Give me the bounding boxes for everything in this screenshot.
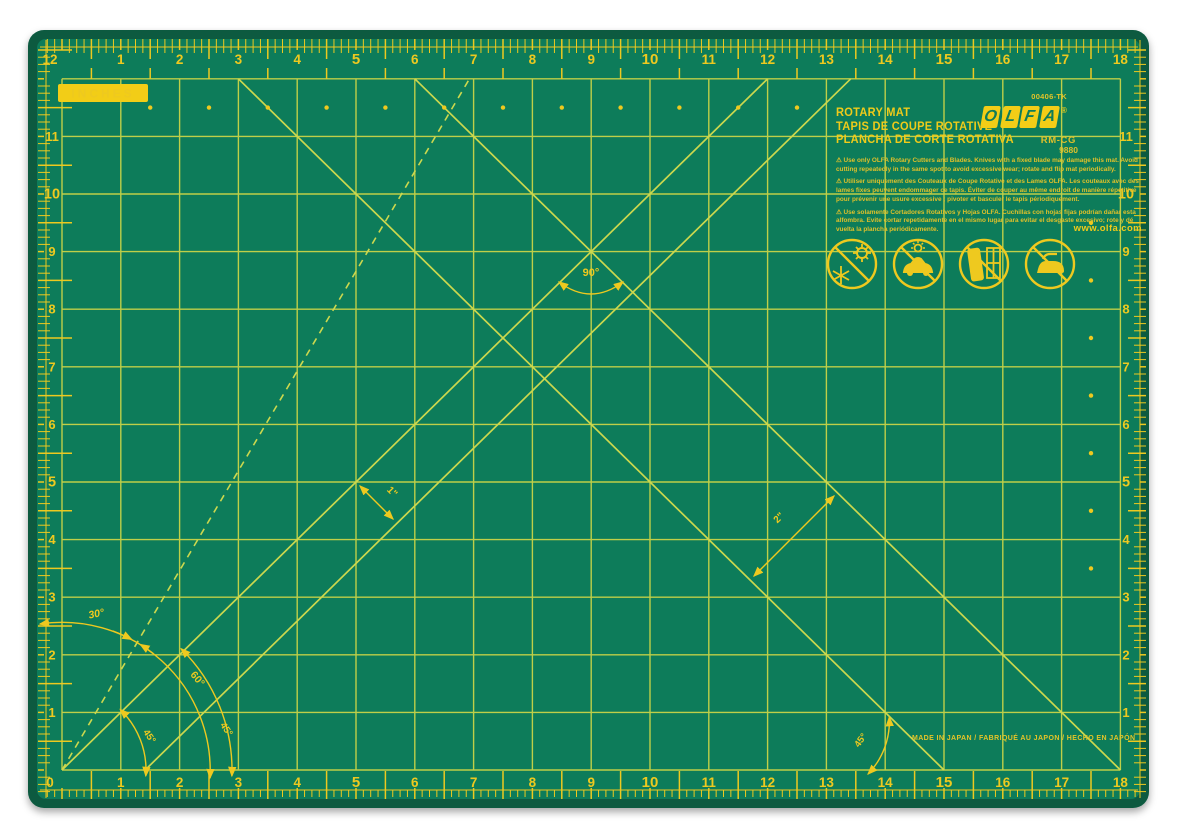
ruler-number-bottom: 3: [235, 775, 243, 790]
ruler-number-top: 10: [642, 51, 659, 68]
ruler-number-bottom: 10: [642, 774, 659, 791]
ruler-number-bottom: 14: [878, 775, 894, 790]
ruler-number-left: 2: [48, 647, 55, 662]
website-url: www.olfa.com: [836, 223, 1142, 234]
half-inch-dot: [1089, 278, 1093, 282]
ruler-number-bottom: 11: [702, 775, 717, 790]
ruler-number-bottom: 7: [470, 775, 478, 790]
logo-letter: A: [1042, 108, 1057, 126]
olfa-logo-tile: L: [1000, 106, 1021, 128]
ruler-number-right: 2: [1122, 647, 1129, 662]
half-inch-dot: [736, 105, 740, 109]
ruler-number-top: 14: [878, 52, 894, 67]
ruler-number-top: 9: [587, 52, 595, 67]
ruler-number-corner-bottom-left: 0: [46, 775, 54, 790]
warning-fr: ⚠ Utiliser uniquement des Couteaux de Co…: [836, 178, 1142, 204]
ruler-number-bottom: 18: [1113, 775, 1129, 790]
registered-trademark-symbol: ®: [1061, 106, 1067, 115]
ruler-number-bottom: 6: [411, 775, 419, 790]
ruler-number-right: 4: [1122, 532, 1130, 547]
ruler-number-right: 8: [1122, 302, 1129, 317]
half-inch-dot: [383, 105, 387, 109]
ruler-number-bottom: 4: [293, 775, 301, 790]
ruler-number-bottom: 1: [117, 775, 125, 790]
half-inch-dot: [1089, 393, 1093, 397]
ruler-number-bottom: 8: [529, 775, 537, 790]
half-inch-dot: [1089, 566, 1093, 570]
ruler-number-top: 3: [235, 52, 243, 67]
ruler-number-top: 17: [1054, 52, 1069, 67]
ruler-number-bottom: 5: [352, 774, 360, 791]
ruler-number-bottom: 9: [587, 775, 595, 790]
ruler-number-right: 1: [1122, 705, 1129, 720]
ruler-number-top: 15: [936, 51, 953, 68]
ruler-number-left: 9: [48, 244, 55, 259]
half-inch-dot: [677, 105, 681, 109]
ruler-number-right: 7: [1122, 359, 1129, 374]
olfa-logo: O L F A ®: [982, 106, 1067, 128]
half-inch-dot: [324, 105, 328, 109]
ruler-number-top: 6: [411, 52, 419, 67]
ruler-number-bottom: 2: [176, 775, 184, 790]
ruler-number-right: 3: [1122, 590, 1129, 605]
ruler-number-left: 7: [48, 359, 55, 374]
ruler-number-top: 16: [995, 52, 1011, 67]
half-inch-dot: [1089, 336, 1093, 340]
ruler-number-left: 6: [48, 417, 55, 432]
olfa-logo-tile: F: [1019, 106, 1040, 128]
ruler-number-right: 6: [1122, 417, 1129, 432]
half-inch-dot: [442, 105, 446, 109]
inches-badge-label: INCHES: [71, 87, 134, 101]
ruler-number-top: 11: [702, 52, 717, 67]
ruler-number-right: 5: [1122, 475, 1130, 491]
ruler-number-left: 3: [48, 590, 55, 605]
ruler-number-left: 1: [48, 705, 55, 720]
product-name-es: PLANCHA DE CORTE ROTATIVA: [836, 134, 1014, 148]
half-inch-dot: [795, 105, 799, 109]
ruler-number-corner-top-left: 12: [42, 52, 57, 67]
ruler-number-right: 9: [1122, 244, 1129, 259]
ruler-number-top: 1: [117, 52, 125, 67]
ruler-number-left: 11: [45, 129, 59, 144]
ruler-number-top: 7: [470, 52, 478, 67]
model-number: 9880: [1026, 145, 1078, 155]
inches-badge: INCHES: [58, 84, 148, 102]
ruler-number-top: 2: [176, 52, 184, 67]
made-in-line: MADE IN JAPAN / FABRIQUÉ AU JAPON / HECH…: [912, 735, 1127, 742]
ruler-number-left: 4: [48, 532, 56, 547]
ruler-number-top: 5: [352, 51, 360, 68]
ruler-number-bottom: 15: [936, 774, 953, 791]
ruler-number-bottom: 16: [995, 775, 1011, 790]
half-inch-dot: [560, 105, 564, 109]
half-inch-dot: [1089, 509, 1093, 513]
half-inch-dot: [266, 105, 270, 109]
warning-en: ⚠ Use only OLFA Rotary Cutters and Blade…: [836, 157, 1142, 174]
logo-letter: O: [983, 108, 999, 126]
ruler-number-left: 10: [44, 187, 60, 203]
half-inch-dot: [618, 105, 622, 109]
half-inch-dot: [501, 105, 505, 109]
ruler-number-top: 13: [819, 52, 835, 67]
ruler-number-bottom: 17: [1054, 775, 1069, 790]
half-inch-dot: [148, 105, 152, 109]
ruler-number-top: 4: [293, 52, 301, 67]
logo-letter: F: [1023, 108, 1036, 126]
ruler-number-left: 5: [48, 475, 56, 491]
cutting-mat-photo: 1234567891011121314151617181234567891011…: [0, 0, 1179, 838]
half-inch-dot: [1089, 451, 1093, 455]
logo-letter: L: [1004, 108, 1017, 126]
olfa-logo-tile: O: [980, 106, 1001, 128]
sku-code: 00406-TK: [995, 92, 1067, 101]
ruler-number-left: 8: [48, 302, 55, 317]
olfa-logo-tile: A: [1039, 106, 1060, 128]
ruler-number-top: 18: [1113, 52, 1129, 67]
ruler-number-right: 11: [1119, 129, 1133, 144]
ruler-number-top: 12: [760, 52, 775, 67]
ruler-number-bottom: 12: [760, 775, 775, 790]
ruler-number-top: 8: [529, 52, 537, 67]
half-inch-dot: [207, 105, 211, 109]
ruler-number-bottom: 13: [819, 775, 835, 790]
angle-90-label: 90°: [583, 267, 600, 279]
